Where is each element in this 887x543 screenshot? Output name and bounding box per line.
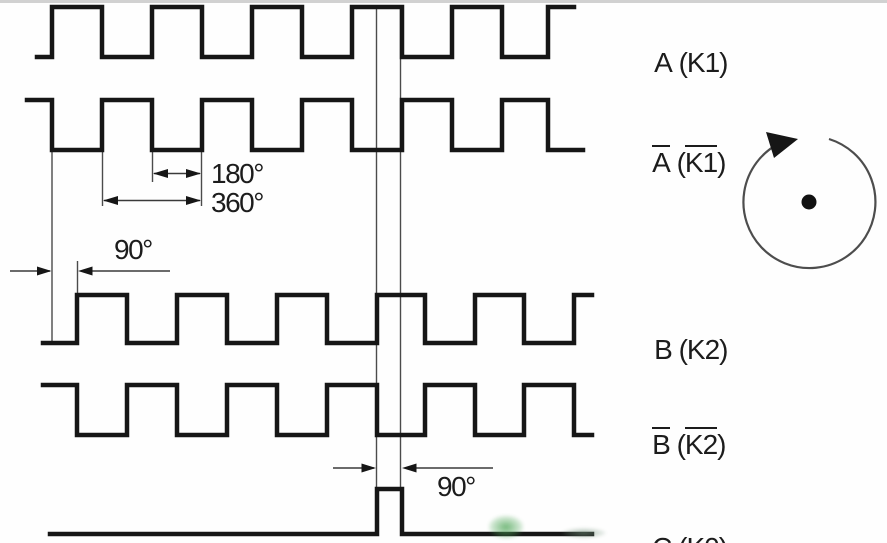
signal-letter: A: [652, 145, 670, 177]
arrowhead-180-left-icon: [153, 169, 168, 178]
phase-angle-label-90-lower: 90°: [437, 473, 475, 501]
signal-code: K2: [685, 427, 717, 459]
signal-a-waveform: [37, 7, 574, 57]
signal-b-waveform: [43, 295, 592, 343]
signal-code: K1: [687, 48, 719, 77]
signal-code: K0: [686, 533, 718, 543]
signal-label-b-bar-k2-bar: B (K2): [625, 398, 726, 489]
signal-label-c-k0: C (K0): [625, 504, 727, 543]
timing-diagram: A (K1) A (K1) B (K2) B (K2) C (K0) 180° …: [0, 0, 887, 543]
signal-label-a-k1: A (K1): [627, 19, 728, 107]
signal-code: K1: [685, 145, 717, 177]
phase-angle-label-90-upper: 90°: [114, 236, 152, 264]
paren-open: (: [672, 335, 687, 364]
arrowhead-90u-right-icon: [78, 267, 93, 276]
paren-close: ): [717, 430, 725, 459]
clockwise-arrowhead-icon: [766, 132, 798, 158]
signal-a-bar-waveform: [27, 100, 583, 150]
paren-open: (: [671, 533, 686, 543]
signal-b-bar-waveform: [43, 385, 592, 435]
arrowhead-90u-left-icon: [37, 267, 52, 276]
arrowhead-90l-right-icon: [402, 464, 417, 473]
signal-label-b-k2: B (K2): [627, 306, 728, 394]
paren-close: ): [719, 335, 727, 364]
signal-letter: B: [652, 427, 670, 459]
paren-open: (: [670, 148, 685, 177]
phase-angle-label-180: 180°: [211, 160, 263, 188]
paren-close: ): [719, 533, 727, 543]
waveform-canvas: [0, 0, 887, 543]
paren-close: ): [717, 148, 725, 177]
signal-code: K2: [687, 335, 719, 364]
signal-letter: C: [652, 533, 671, 543]
phase-angle-label-360: 360°: [211, 189, 263, 217]
rotation-indicator: [743, 132, 875, 268]
dimension-arrow-90-upper: [10, 267, 170, 276]
dimension-arrow-180: [153, 169, 201, 178]
arrowhead-180-right-icon: [186, 169, 201, 178]
arrowhead-360-right-icon: [186, 196, 201, 205]
arrowhead-360-left-icon: [103, 196, 118, 205]
arrowhead-90l-left-icon: [362, 464, 377, 473]
signal-letter: B: [654, 335, 672, 364]
signal-label-a-bar-k1-bar: A (K1): [625, 116, 726, 207]
signal-c-waveform: [50, 489, 592, 534]
rotation-center-dot: [802, 195, 817, 210]
paren-close: ): [719, 48, 727, 77]
paren-open: (: [672, 48, 687, 77]
dimension-arrow-360: [103, 196, 201, 205]
signal-letter: A: [654, 48, 672, 77]
paren-open: (: [670, 430, 685, 459]
